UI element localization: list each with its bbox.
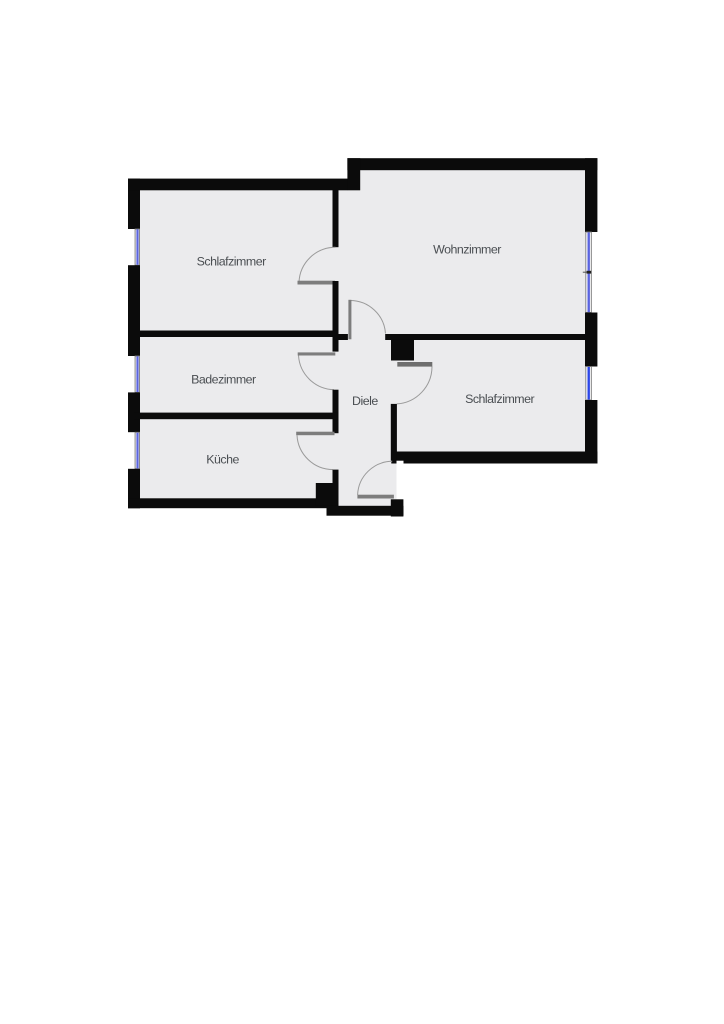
svg-text:Badezimmer: Badezimmer	[191, 373, 256, 387]
svg-text:Diele: Diele	[352, 394, 378, 408]
svg-text:Schlafzimmer: Schlafzimmer	[197, 254, 266, 268]
svg-text:Schlafzimmer: Schlafzimmer	[465, 392, 534, 406]
svg-text:Küche: Küche	[206, 453, 239, 467]
svg-text:Wohnzimmer: Wohnzimmer	[433, 242, 501, 256]
